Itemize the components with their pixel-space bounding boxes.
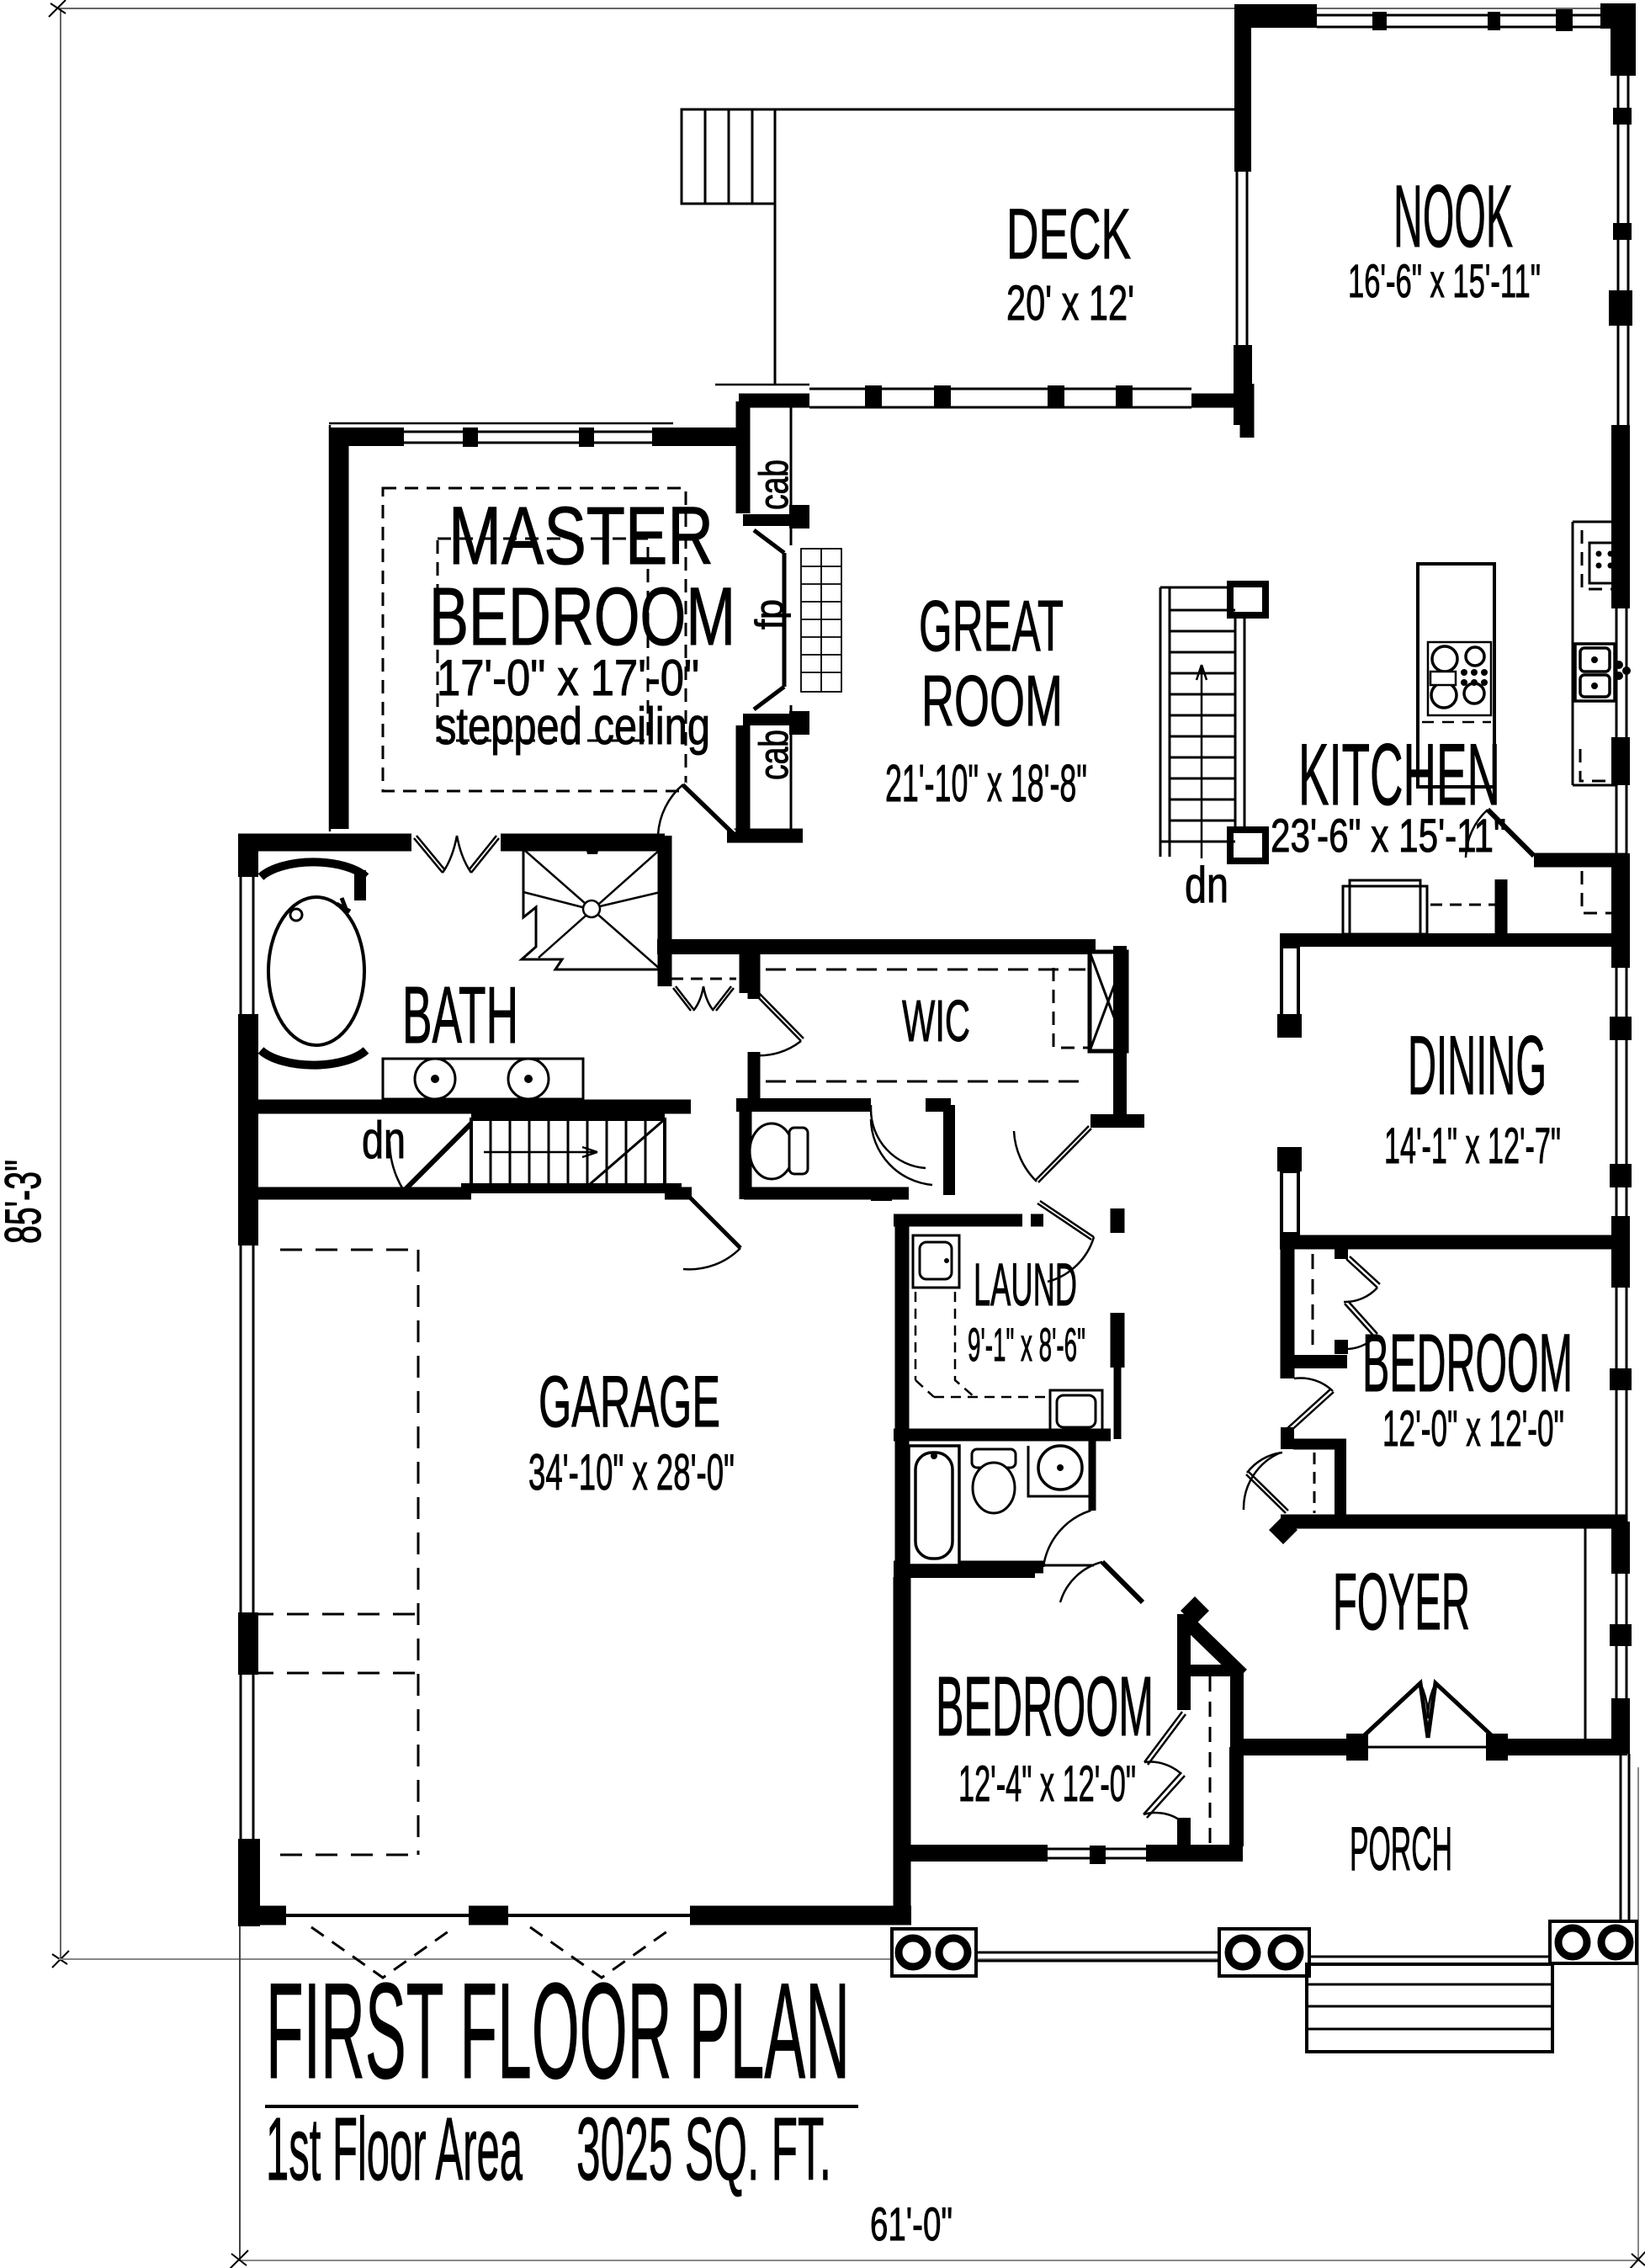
svg-text:BEDROOM: BEDROOM xyxy=(936,1660,1154,1754)
svg-text:stepped ceiling: stepped ceiling xyxy=(436,698,710,756)
svg-text:cab: cab xyxy=(752,730,797,780)
svg-text:cab: cab xyxy=(752,459,797,510)
svg-text:NOOK: NOOK xyxy=(1393,167,1513,266)
svg-text:12'-4" x 12'-0": 12'-4" x 12'-0" xyxy=(958,1755,1136,1812)
svg-text:9'-1" x 8'-6": 9'-1" x 8'-6" xyxy=(968,1318,1085,1371)
svg-text:1st Floor Area: 1st Floor Area xyxy=(266,2100,523,2199)
svg-text:20' x 12': 20' x 12' xyxy=(1006,276,1134,331)
svg-text:14'-1" x 12'-7": 14'-1" x 12'-7" xyxy=(1384,1118,1561,1174)
svg-text:fp: fp xyxy=(747,599,791,629)
svg-text:85'-3": 85'-3" xyxy=(0,1160,51,1244)
svg-text:DECK: DECK xyxy=(1006,194,1131,274)
svg-text:PORCH: PORCH xyxy=(1350,1815,1452,1883)
svg-text:dn: dn xyxy=(1185,857,1228,913)
svg-text:MASTER: MASTER xyxy=(448,490,714,582)
svg-text:FOYER: FOYER xyxy=(1333,1557,1470,1647)
svg-text:ROOM: ROOM xyxy=(921,661,1063,741)
svg-text:16'-6" x 15'-11": 16'-6" x 15'-11" xyxy=(1348,254,1541,307)
svg-text:21'-10" x 18'-8": 21'-10" x 18'-8" xyxy=(885,755,1087,813)
svg-text:dn: dn xyxy=(362,1112,406,1170)
svg-text:WIC: WIC xyxy=(902,988,970,1054)
svg-text:12'-0" x 12'-0": 12'-0" x 12'-0" xyxy=(1382,1400,1564,1457)
svg-text:FIRST FLOOR PLAN: FIRST FLOOR PLAN xyxy=(266,1955,850,2107)
svg-text:BEDROOM: BEDROOM xyxy=(429,571,735,662)
svg-text:GARAGE: GARAGE xyxy=(539,1362,720,1442)
svg-text:BEDROOM: BEDROOM xyxy=(1362,1317,1573,1409)
svg-text:DINING: DINING xyxy=(1408,1018,1547,1112)
svg-text:LAUND: LAUND xyxy=(974,1252,1077,1319)
svg-text:34'-10" x 28'-0": 34'-10" x 28'-0" xyxy=(528,1444,735,1500)
svg-text:3025 SQ. FT.: 3025 SQ. FT. xyxy=(576,2100,831,2199)
svg-text:BATH: BATH xyxy=(402,970,518,1060)
svg-text:61'-0": 61'-0" xyxy=(870,2197,953,2250)
svg-text:GREAT: GREAT xyxy=(919,587,1064,667)
